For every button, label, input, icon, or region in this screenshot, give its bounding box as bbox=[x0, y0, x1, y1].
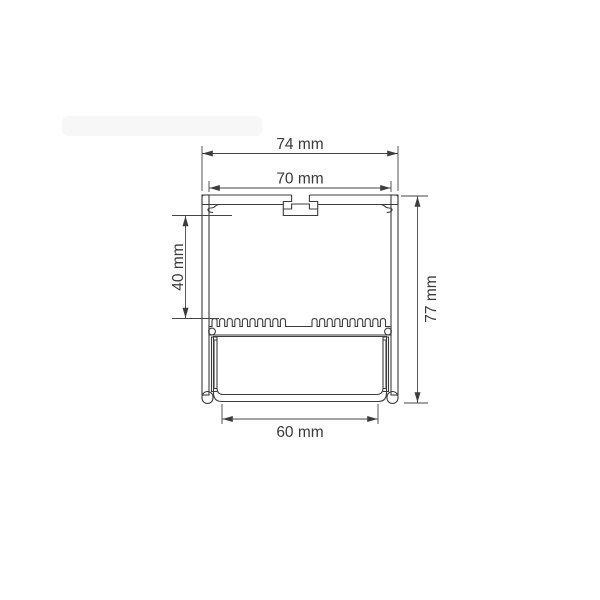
dimension-diffuser-width: 60 mm bbox=[222, 404, 378, 441]
heatsink-fins bbox=[209, 319, 391, 335]
faint-watermark bbox=[62, 116, 262, 136]
right-corner-clip bbox=[380, 205, 392, 213]
slot-opening bbox=[292, 194, 310, 202]
left-wall bbox=[202, 195, 209, 395]
left-foot bbox=[202, 392, 213, 404]
right-diffuser-groove bbox=[383, 337, 389, 392]
dim-label-mounting-width: 70 mm bbox=[276, 171, 323, 188]
left-corner-clip bbox=[208, 205, 220, 213]
slot-cavity bbox=[283, 202, 317, 210]
dim-label-outer-width: 74 mm bbox=[276, 136, 323, 153]
profile-cross-section-drawing: 74 mm 70 mm 40 mm 77 mm 60 mm bbox=[0, 0, 600, 600]
right-foot bbox=[387, 392, 398, 404]
dimension-upper-chamber-height: 40 mm bbox=[170, 216, 232, 319]
left-diffuser-groove bbox=[212, 337, 218, 392]
dim-label-upper-chamber-height: 40 mm bbox=[170, 243, 187, 290]
profile-body bbox=[202, 194, 398, 404]
diffuser-inner bbox=[217, 337, 383, 395]
technical-drawing-page: 74 mm 70 mm 40 mm 77 mm 60 mm bbox=[0, 0, 600, 600]
dim-label-overall-height: 77 mm bbox=[423, 275, 440, 322]
left-screw-boss bbox=[209, 328, 216, 335]
diffuser-outer bbox=[214, 337, 387, 402]
dim-label-diffuser-width: 60 mm bbox=[276, 424, 323, 441]
dimension-overall-height: 77 mm bbox=[401, 196, 440, 403]
right-screw-boss bbox=[385, 328, 392, 335]
right-wall bbox=[391, 195, 398, 395]
dimension-mounting-width: 70 mm bbox=[209, 171, 391, 193]
